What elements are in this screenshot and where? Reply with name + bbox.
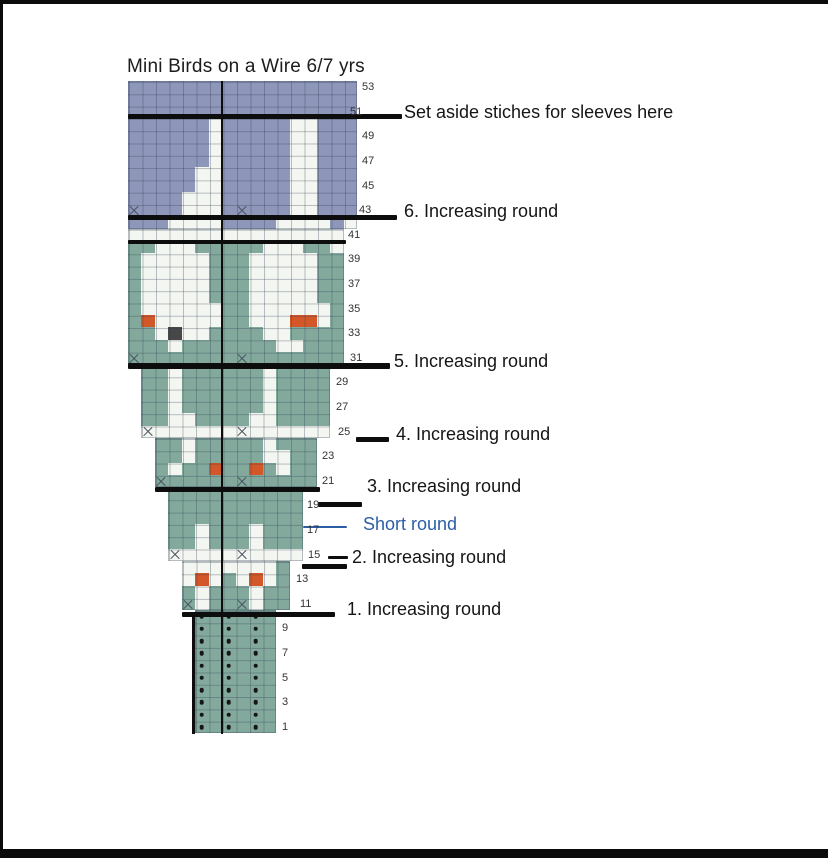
row-number: 21 — [322, 475, 334, 487]
round-annotation: Short round — [363, 514, 457, 535]
stitch-cell — [141, 167, 155, 179]
stitch-cell — [344, 167, 358, 179]
stitch-cell — [195, 438, 209, 450]
purl-dot-icon — [199, 651, 204, 656]
stitch-cell — [330, 192, 344, 204]
stitch-cell — [249, 401, 263, 413]
stitch-cell — [168, 143, 182, 155]
stitch-cell — [222, 536, 236, 548]
stitch-cell — [195, 315, 209, 327]
stitch-cell — [330, 167, 344, 179]
stitch-cell — [249, 167, 263, 179]
purl-dot-icon — [199, 700, 204, 705]
stitch-cell — [222, 167, 236, 179]
stitch-cell — [276, 303, 290, 315]
stitch-cell — [141, 315, 155, 327]
stitch-cell — [263, 155, 277, 167]
stitch-cell — [222, 573, 236, 585]
stitch-cell — [263, 118, 277, 130]
stitch-cell — [195, 586, 209, 598]
stitch-cell — [330, 81, 344, 93]
stitch-cell — [263, 499, 277, 511]
stitch-cell — [249, 438, 263, 450]
stitch-cell — [236, 389, 250, 401]
stitch-cell — [290, 536, 304, 548]
stitch-cell — [344, 155, 358, 167]
stitch-cell — [249, 512, 263, 524]
stitch-cell — [249, 180, 263, 192]
stitch-cell — [249, 81, 263, 93]
stitch-cell — [236, 672, 250, 684]
stitch-cell — [182, 253, 196, 265]
stitch-cell — [290, 192, 304, 204]
stitch-cell — [195, 549, 209, 561]
wire-line — [128, 363, 391, 369]
wire-line — [128, 215, 398, 220]
stitch-cell — [263, 167, 277, 179]
stitch-cell — [182, 303, 196, 315]
purl-dot-icon — [253, 688, 258, 693]
stitch-cell — [155, 389, 169, 401]
stitch-cell — [195, 573, 209, 585]
stitch-cell — [155, 438, 169, 450]
stitch-cell — [276, 598, 290, 610]
stitch-cell — [249, 426, 263, 438]
stitch-cell — [276, 549, 290, 561]
stitch-cell — [236, 180, 250, 192]
purl-dot-icon — [226, 663, 231, 668]
stitch-cell — [236, 463, 250, 475]
stitch-cell — [141, 290, 155, 302]
stitch-cell — [236, 94, 250, 106]
stitch-cell — [317, 118, 331, 130]
stitch-cell — [182, 389, 196, 401]
stitch-cell — [222, 524, 236, 536]
stitch-cell — [276, 94, 290, 106]
stitch-cell — [263, 290, 277, 302]
stitch-cell — [182, 463, 196, 475]
chart-section-yoke-purple — [128, 81, 358, 229]
stitch-cell — [195, 413, 209, 425]
stitch-cell — [155, 475, 169, 487]
stitch-cell — [249, 475, 263, 487]
stitch-cell — [195, 253, 209, 265]
stitch-cell — [263, 303, 277, 315]
stitch-cell — [182, 290, 196, 302]
stitch-cell — [263, 586, 277, 598]
round-annotation: 6. Increasing round — [404, 201, 558, 222]
stitch-cell — [249, 290, 263, 302]
stitch-cell — [195, 499, 209, 511]
stitch-cell — [195, 155, 209, 167]
purl-dot-icon — [253, 626, 258, 631]
row-number: 31 — [350, 352, 362, 364]
purl-dot-icon — [253, 725, 258, 730]
stitch-cell — [263, 376, 277, 388]
stitch-cell — [195, 598, 209, 610]
stitch-cell — [141, 94, 155, 106]
stitch-cell — [195, 475, 209, 487]
row-number: 1 — [282, 721, 288, 733]
stitch-cell — [236, 573, 250, 585]
stitch-cell — [182, 426, 196, 438]
stitch-cell — [303, 389, 317, 401]
increase-stitch-icon — [237, 353, 248, 363]
stitch-cell — [276, 278, 290, 290]
stitch-cell — [276, 389, 290, 401]
page-title: Mini Birds on a Wire 6/7 yrs — [127, 56, 365, 78]
row-number: 37 — [348, 278, 360, 290]
stitch-cell — [155, 253, 169, 265]
stitch-cell — [263, 130, 277, 142]
stitch-cell — [249, 155, 263, 167]
stitch-cell — [222, 622, 236, 634]
stitch-cell — [249, 598, 263, 610]
stitch-cell — [344, 94, 358, 106]
stitch-cell — [155, 340, 169, 352]
increase-stitch-icon — [237, 476, 248, 486]
row-number: 47 — [362, 155, 374, 167]
stitch-cell — [128, 130, 142, 142]
stitch-cell — [236, 499, 250, 511]
stitch-cell — [249, 143, 263, 155]
stitch-cell — [263, 438, 277, 450]
stitch-cell — [141, 303, 155, 315]
stitch-cell — [263, 413, 277, 425]
stitch-cell — [222, 94, 236, 106]
stitch-cell — [303, 327, 317, 339]
stitch-cell — [195, 118, 209, 130]
stitch-cell — [236, 192, 250, 204]
row-number: 17 — [307, 524, 319, 536]
stitch-cell — [195, 709, 209, 721]
stitch-cell — [168, 167, 182, 179]
stitch-cell — [249, 376, 263, 388]
stitch-cell — [276, 290, 290, 302]
stitch-cell — [276, 536, 290, 548]
stitch-cell — [249, 536, 263, 548]
wire-line — [356, 437, 389, 442]
stitch-cell — [168, 81, 182, 93]
stitch-cell — [290, 549, 304, 561]
stitch-cell — [222, 155, 236, 167]
stitch-cell — [290, 290, 304, 302]
stitch-cell — [263, 266, 277, 278]
stitch-cell — [249, 192, 263, 204]
chart-section-body-rows-24-21 — [155, 438, 317, 487]
stitch-cell — [141, 413, 155, 425]
stitch-cell — [317, 143, 331, 155]
stitch-cell — [290, 389, 304, 401]
stitch-cell — [249, 622, 263, 634]
stitch-cell — [141, 278, 155, 290]
stitch-cell — [236, 376, 250, 388]
stitch-cell — [344, 192, 358, 204]
stitch-cell — [276, 81, 290, 93]
stitch-cell — [290, 340, 304, 352]
stitch-cell — [303, 413, 317, 425]
stitch-cell — [276, 253, 290, 265]
row-number: 11 — [300, 598, 311, 610]
stitch-cell — [263, 647, 277, 659]
stitch-cell — [155, 94, 169, 106]
stitch-cell — [249, 672, 263, 684]
stitch-cell — [236, 598, 250, 610]
stitch-cell — [128, 278, 142, 290]
stitch-cell — [303, 450, 317, 462]
purl-dot-icon — [226, 676, 231, 681]
stitch-cell — [263, 561, 277, 573]
stitch-cell — [303, 118, 317, 130]
row-number: 51 — [350, 106, 362, 118]
wire-line — [302, 564, 347, 569]
stitch-cell — [276, 167, 290, 179]
stitch-cell — [168, 303, 182, 315]
stitch-cell — [236, 130, 250, 142]
stitch-cell — [263, 684, 277, 696]
stitch-cell — [155, 130, 169, 142]
stitch-cell — [128, 143, 142, 155]
stitch-cell — [222, 450, 236, 462]
row-number: 7 — [282, 647, 288, 659]
stitch-cell — [303, 81, 317, 93]
stitch-cell — [128, 94, 142, 106]
stitch-cell — [249, 450, 263, 462]
stitch-cell — [222, 81, 236, 93]
stitch-cell — [276, 401, 290, 413]
row-number: 13 — [296, 573, 308, 585]
stitch-cell — [236, 721, 250, 733]
stitch-cell — [182, 94, 196, 106]
stitch-cell — [195, 376, 209, 388]
stitch-cell — [195, 512, 209, 524]
stitch-cell — [330, 278, 344, 290]
stitch-cell — [317, 180, 331, 192]
stitch-cell — [168, 94, 182, 106]
stitch-cell — [236, 635, 250, 647]
stitch-cell — [290, 524, 304, 536]
stitch-cell — [263, 401, 277, 413]
stitch-cell — [236, 81, 250, 93]
stitch-cell — [222, 413, 236, 425]
stitch-cell — [141, 389, 155, 401]
stitch-cell — [236, 278, 250, 290]
stitch-cell — [182, 180, 196, 192]
stitch-cell — [168, 413, 182, 425]
stitch-cell — [195, 290, 209, 302]
increase-stitch-icon — [237, 206, 248, 216]
stitch-cell — [182, 143, 196, 155]
stitch-cell — [236, 426, 250, 438]
stitch-cell — [317, 155, 331, 167]
stitch-cell — [303, 167, 317, 179]
stitch-cell — [222, 438, 236, 450]
stitch-cell — [290, 315, 304, 327]
stitch-cell — [303, 192, 317, 204]
stitch-cell — [276, 413, 290, 425]
stitch-cell — [236, 586, 250, 598]
stitch-cell — [317, 167, 331, 179]
row-number: 25 — [338, 426, 350, 438]
stitch-cell — [155, 290, 169, 302]
row-number: 43 — [359, 204, 371, 216]
stitch-cell — [236, 622, 250, 634]
stitch-cell — [317, 266, 331, 278]
purl-dot-icon — [199, 626, 204, 631]
increase-stitch-icon — [183, 599, 194, 609]
stitch-cell — [182, 167, 196, 179]
stitch-cell — [263, 536, 277, 548]
stitch-cell — [222, 647, 236, 659]
stitch-cell — [276, 180, 290, 192]
stitch-cell — [276, 266, 290, 278]
stitch-cell — [182, 118, 196, 130]
stitch-cell — [317, 413, 331, 425]
purl-dot-icon — [253, 676, 258, 681]
stitch-cell — [236, 475, 250, 487]
stitch-cell — [128, 303, 142, 315]
stitch-cell — [276, 499, 290, 511]
stitch-cell — [317, 303, 331, 315]
knitting-pattern-page: Mini Birds on a Wire 6/7 yrs 53514947454… — [0, 0, 828, 858]
stitch-cell — [236, 684, 250, 696]
stitch-cell — [263, 512, 277, 524]
stitch-cell — [290, 303, 304, 315]
stitch-cell — [141, 426, 155, 438]
stitch-cell — [128, 290, 142, 302]
stitch-cell — [276, 573, 290, 585]
stitch-cell — [263, 253, 277, 265]
stitch-cell — [330, 266, 344, 278]
stitch-cell — [236, 290, 250, 302]
stitch-cell — [303, 315, 317, 327]
stitch-cell — [155, 192, 169, 204]
stitch-cell — [344, 130, 358, 142]
stitch-cell — [155, 155, 169, 167]
stitch-cell — [222, 253, 236, 265]
stitch-cell — [290, 167, 304, 179]
wire-line — [328, 556, 348, 560]
stitch-cell — [128, 315, 142, 327]
purl-dot-icon — [253, 700, 258, 705]
stitch-cell — [155, 180, 169, 192]
stitch-cell — [182, 561, 196, 573]
chart-section-body-rows-20-15 — [168, 487, 303, 561]
stitch-cell — [168, 118, 182, 130]
stitch-cell — [236, 536, 250, 548]
stitch-cell — [182, 81, 196, 93]
stitch-cell — [182, 450, 196, 462]
row-number: 49 — [362, 130, 374, 142]
stitch-cell — [222, 499, 236, 511]
stitch-cell — [182, 130, 196, 142]
stitch-cell — [330, 118, 344, 130]
purl-dot-icon — [199, 676, 204, 681]
stitch-cell — [236, 524, 250, 536]
stitch-cell — [182, 266, 196, 278]
row-number: 33 — [348, 327, 360, 339]
purl-dot-icon — [226, 639, 231, 644]
purl-dot-icon — [226, 700, 231, 705]
stitch-cell — [249, 327, 263, 339]
stitch-cell — [303, 290, 317, 302]
stitch-cell — [195, 684, 209, 696]
stitch-cell — [222, 512, 236, 524]
stitch-cell — [236, 118, 250, 130]
stitch-cell — [236, 512, 250, 524]
stitch-cell — [222, 278, 236, 290]
stitch-cell — [249, 266, 263, 278]
stitch-cell — [141, 327, 155, 339]
stitch-cell — [155, 81, 169, 93]
stitch-cell — [330, 253, 344, 265]
stitch-cell — [317, 130, 331, 142]
stitch-cell — [222, 180, 236, 192]
stitch-cell — [290, 253, 304, 265]
stitch-cell — [182, 192, 196, 204]
stitch-cell — [182, 315, 196, 327]
stitch-cell — [236, 659, 250, 671]
stitch-cell — [222, 561, 236, 573]
stitch-cell — [290, 327, 304, 339]
stitch-cell — [290, 155, 304, 167]
stitch-cell — [155, 376, 169, 388]
round-annotation: 4. Increasing round — [396, 424, 550, 445]
stitch-cell — [222, 303, 236, 315]
stitch-cell — [182, 401, 196, 413]
stitch-cell — [303, 303, 317, 315]
stitch-cell — [128, 155, 142, 167]
stitch-cell — [141, 118, 155, 130]
stitch-cell — [168, 389, 182, 401]
stitch-cell — [276, 130, 290, 142]
stitch-cell — [263, 94, 277, 106]
stitch-cell — [263, 278, 277, 290]
increase-stitch-icon — [237, 599, 248, 609]
stitch-cell — [195, 622, 209, 634]
stitch-cell — [249, 340, 263, 352]
stitch-cell — [195, 450, 209, 462]
stitch-cell — [290, 450, 304, 462]
stitch-cell — [195, 561, 209, 573]
stitch-cell — [222, 290, 236, 302]
stitch-cell — [290, 376, 304, 388]
stitch-cell — [276, 376, 290, 388]
stitch-cell — [222, 327, 236, 339]
stitch-cell — [195, 524, 209, 536]
stitch-cell — [276, 586, 290, 598]
wire-line — [318, 502, 362, 507]
stitch-cell — [303, 426, 317, 438]
stitch-cell — [155, 315, 169, 327]
stitch-cell — [249, 499, 263, 511]
purl-dot-icon — [199, 663, 204, 668]
stitch-cell — [290, 130, 304, 142]
stitch-cell — [222, 118, 236, 130]
stitch-cell — [249, 118, 263, 130]
stitch-cell — [249, 315, 263, 327]
stitch-cell — [276, 450, 290, 462]
stitch-cell — [290, 499, 304, 511]
stitch-cell — [330, 155, 344, 167]
stitch-cell — [141, 130, 155, 142]
stitch-cell — [128, 167, 142, 179]
row-number: 41 — [348, 229, 360, 241]
stitch-cell — [276, 143, 290, 155]
stitch-cell — [236, 647, 250, 659]
stitch-cell — [276, 561, 290, 573]
stitch-cell — [303, 143, 317, 155]
